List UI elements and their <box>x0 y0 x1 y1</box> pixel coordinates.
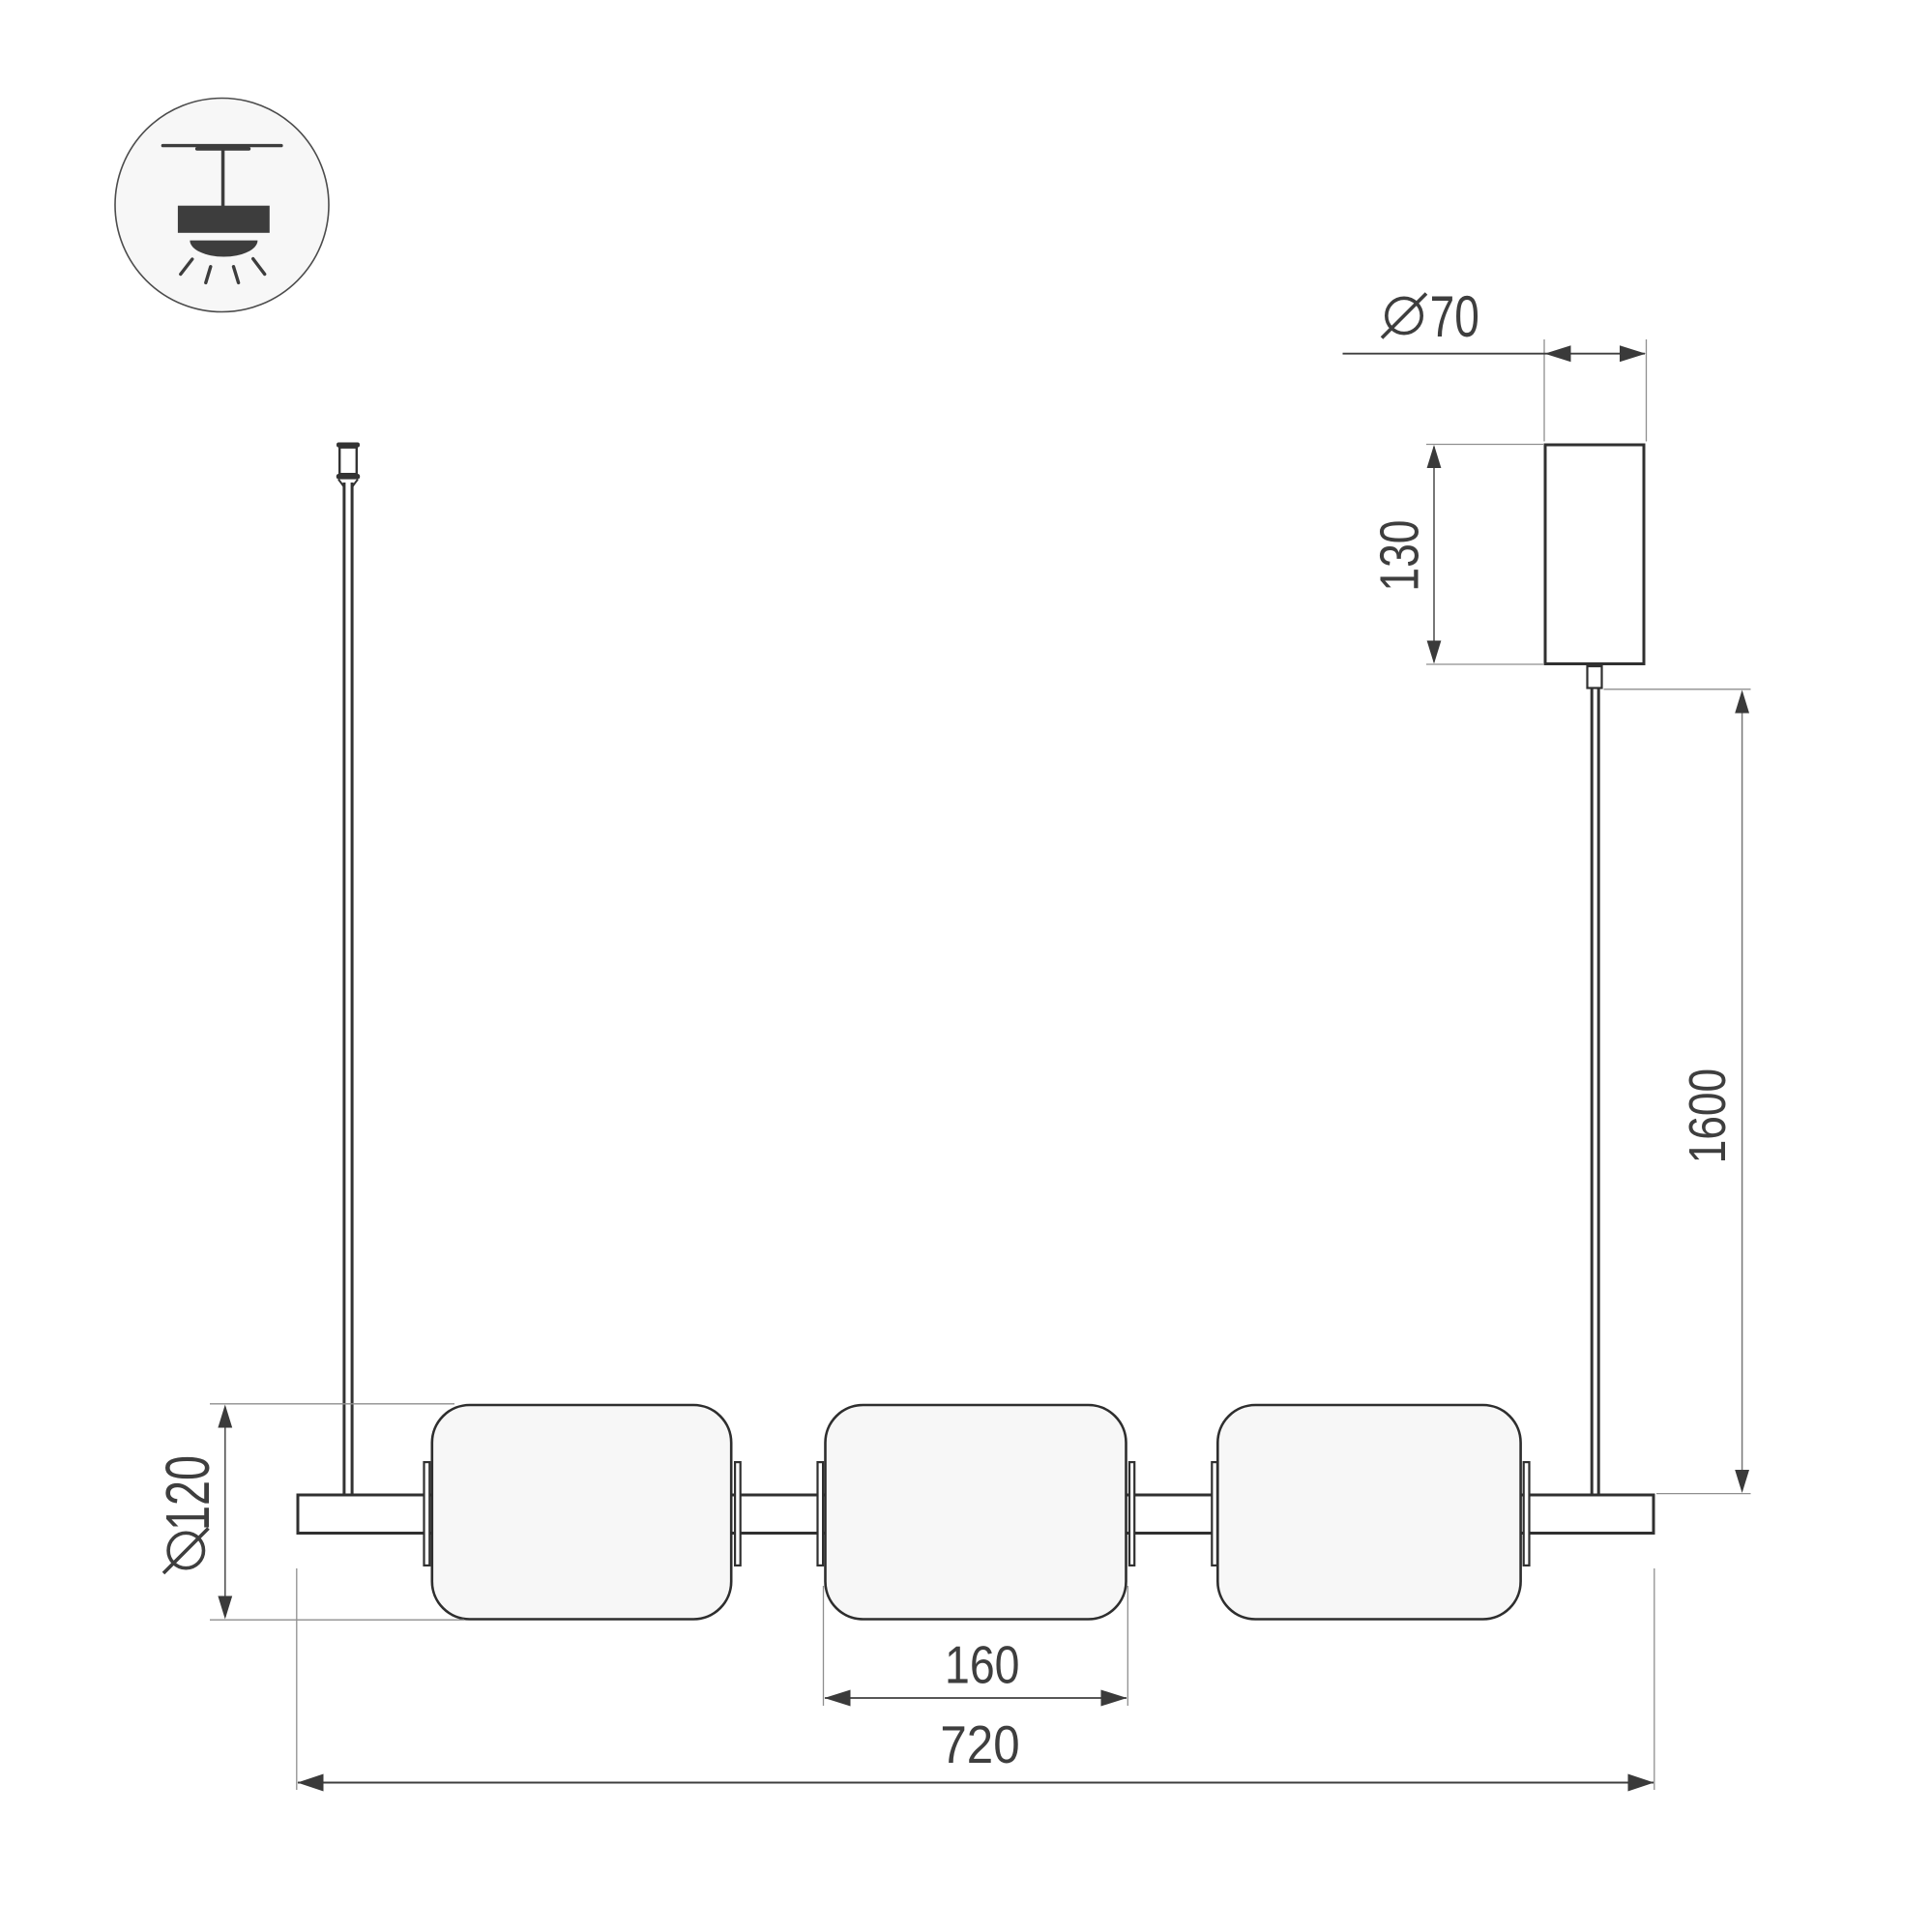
svg-text:120: 120 <box>153 1455 222 1531</box>
svg-text:70: 70 <box>1430 284 1479 349</box>
svg-text:130: 130 <box>1369 520 1431 592</box>
svg-text:160: 160 <box>945 1635 1020 1695</box>
svg-text:1600: 1600 <box>1679 1068 1737 1164</box>
svg-text:720: 720 <box>940 1714 1019 1774</box>
